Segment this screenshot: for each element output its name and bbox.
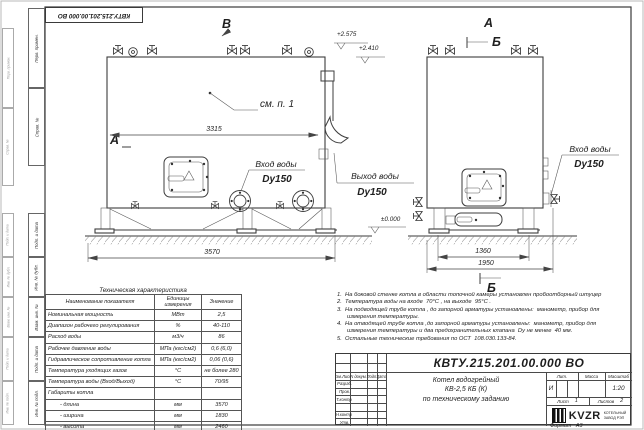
scale-label: Масштаб	[605, 372, 632, 380]
margin-box: Справ. №	[2, 108, 14, 186]
inlet-label-front: Вход воды	[255, 159, 297, 169]
level-top-label: +2.575	[337, 31, 357, 38]
outlet-label-front: Выход воды	[351, 171, 400, 181]
section-label-b-top: Б	[492, 35, 501, 49]
title-block-doc-number: КВТУ.215.201.00.000 ВО	[386, 354, 632, 372]
margin-box: Подп. и дата	[2, 337, 14, 381]
dim-front-body: 3315	[206, 126, 222, 133]
tech-col-value: Значение	[202, 295, 242, 310]
note-line: измерения температуры и два предохраните…	[337, 328, 633, 335]
title-block: КВТУ.215.201.00.000 ВО Изм.Лист N докум.…	[335, 353, 631, 425]
margin-box: Подп. и дата	[28, 213, 45, 257]
table-row: - ширинамм1830	[46, 410, 242, 421]
margin-box: Справ. №	[28, 88, 45, 166]
margin-box: Взам. инв. №	[2, 297, 14, 337]
product-title: Котел водогрейный КВ-2,5 КБ (К) по техни…	[386, 372, 546, 408]
col-n-dokum: N докум.	[350, 372, 367, 380]
company-logo-icon	[552, 408, 566, 423]
note-line: 4. На отводящей трубе котла ,до запорной…	[337, 321, 633, 328]
tech-table: Наименование показателя Единицы измерени…	[45, 294, 242, 430]
col-izm-list: Изм.Лист	[336, 372, 350, 380]
margin-box: Инв. № дубл.	[28, 257, 45, 297]
level-mid-label: +2.410	[359, 45, 379, 52]
table-row: - высотамм2460	[46, 421, 242, 430]
dim-front-total: 3570	[204, 249, 220, 256]
table-row: Расход водым3/ч86	[46, 332, 242, 343]
format-label: Формат А3	[550, 423, 583, 429]
note-line: измерения температуры.	[337, 314, 633, 321]
note-line: 1. На боковой стенке котла в области топ…	[337, 292, 633, 299]
tech-characteristics: Техническая характеристика Наименование …	[45, 287, 241, 430]
margin-box: Подп. и дата	[2, 213, 14, 257]
margin-box: Подп. и дата	[28, 337, 45, 381]
view-label-a-right: А	[483, 16, 493, 30]
inlet-dn-side: Dy150	[574, 159, 604, 170]
row-prov: Пров.	[336, 388, 352, 396]
table-row: - длинамм3570	[46, 399, 242, 410]
row-razrab: Разраб.	[336, 380, 352, 388]
level-zero-label: ±0.000	[381, 216, 401, 223]
note-line: 5. Остальные технические требования по О…	[337, 336, 633, 343]
doc-number-rotated-box: КВТУ.215.201.00.000 ВО	[45, 7, 143, 23]
ground-hatch-front	[85, 237, 372, 245]
tech-col-unit: Единицы измерения	[155, 295, 202, 310]
company-brand: KVZR	[569, 410, 601, 422]
see-note-label: см. п. 1	[260, 99, 294, 110]
dim-side-total: 1950	[478, 260, 494, 267]
drawing-sheet: В А см. п. 1 3315 Вход воды Dy150 Выход …	[0, 0, 644, 430]
technical-notes: 1. На боковой стенке котла в области топ…	[337, 292, 633, 343]
table-row: Рабочее давление водыМПа (кгс/см2)0,6 (6…	[46, 343, 242, 354]
scale-value: 1:20	[605, 380, 632, 397]
note-line: 3. На подводящей трубе котла , до запорн…	[337, 307, 633, 314]
row-blank	[336, 403, 352, 411]
company-name: КОТЕЛЬНЫЙ ЗАВОД РЭП	[604, 411, 627, 419]
sheet-cell: Лист 1	[546, 397, 589, 405]
margin-box: Перв. примен.	[2, 28, 14, 108]
ground-hatch-side	[408, 237, 577, 245]
lit-label: Лит.	[546, 372, 578, 380]
doc-number-rotated: КВТУ.215.201.00.000 ВО	[58, 12, 130, 19]
boiler-body-side	[427, 57, 543, 208]
tech-table-title: Техническая характеристика	[45, 287, 241, 294]
row-utv: Утв.	[336, 418, 352, 426]
dim-side-inner: 1360	[475, 248, 491, 255]
col-podp: Подп.	[367, 372, 377, 380]
lit-value: И	[546, 380, 556, 397]
table-row: Габариты котла	[46, 388, 242, 399]
margin-box: Инв. № дубл.	[2, 257, 14, 297]
sheets-cell: Листов 2	[589, 397, 632, 405]
inlet-label-side: Вход воды	[569, 144, 611, 154]
view-label-b: В	[222, 17, 231, 31]
mass-label: Масса	[578, 372, 605, 380]
tech-col-name: Наименование показателя	[46, 295, 155, 310]
row-tkontr: Т.контр.	[336, 395, 352, 403]
table-row: Температура уходящих газов°Сне более 280	[46, 365, 242, 376]
margin-box: Перв. примен.	[28, 8, 45, 88]
outlet-dn-front: Dy150	[357, 187, 387, 198]
table-row: Номинальная мощностьМВт2,5	[46, 310, 242, 321]
table-row: Диапазон рабочего регулирования%40-110	[46, 321, 242, 332]
inlet-dn-front: Dy150	[262, 174, 292, 185]
table-row: Температура воды (Вход/Выход)°С70/95	[46, 377, 242, 388]
margin-box: Инв. № подл.	[28, 381, 45, 425]
margin-box: Взам. инв. №	[28, 297, 45, 337]
note-line: 2. Температура воды на входе 70°С , на в…	[337, 299, 633, 306]
table-row: Гидравлическое сопротивление котлаМПа (к…	[46, 354, 242, 365]
margin-box: Инв. № подл.	[2, 381, 14, 425]
col-data: Дата	[377, 372, 386, 380]
row-nkontr: Н.контр.	[336, 411, 352, 419]
